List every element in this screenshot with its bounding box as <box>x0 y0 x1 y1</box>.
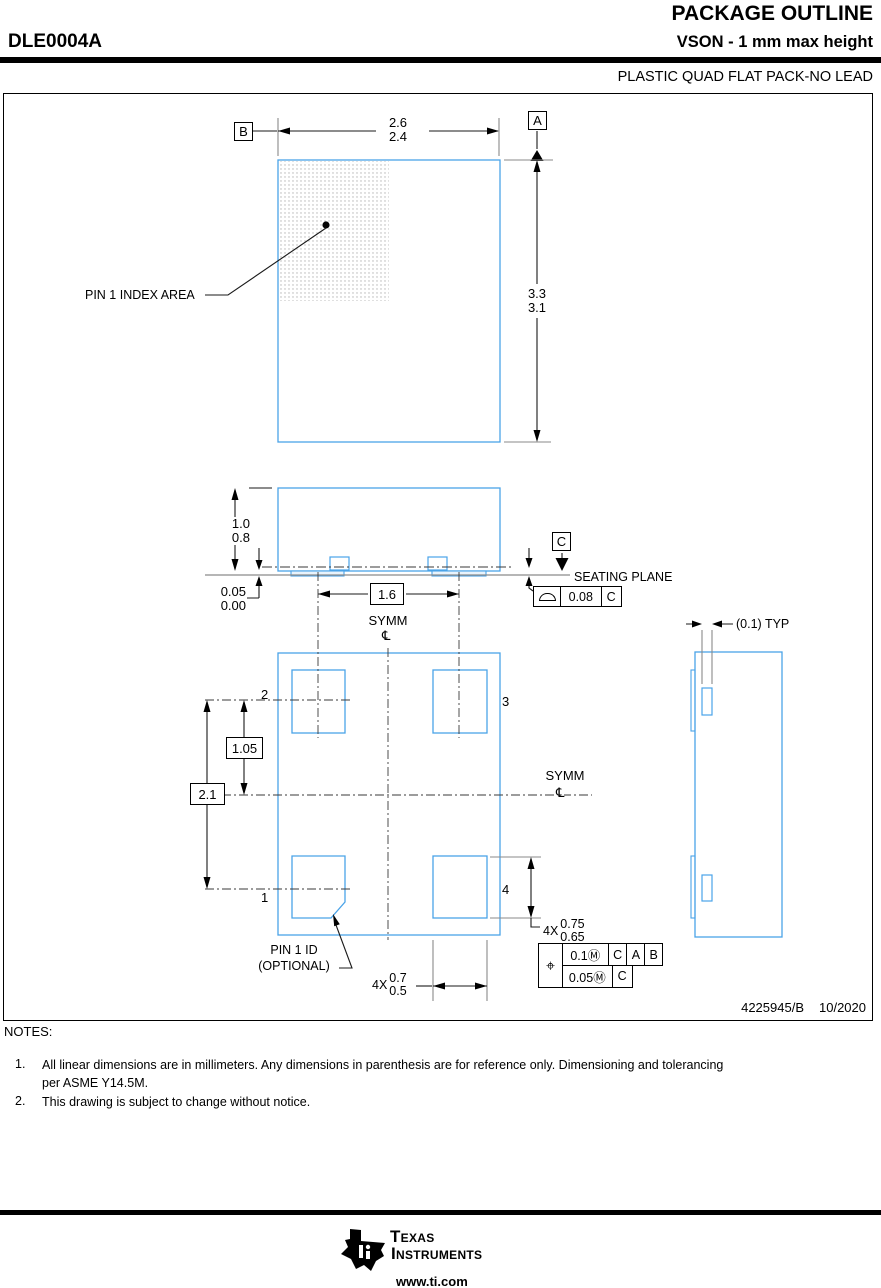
pitch-dim: 1.6 <box>378 587 396 602</box>
position-datum1-a: A <box>626 943 645 966</box>
side-view <box>205 488 570 598</box>
pin1-id-leader <box>336 925 352 968</box>
body-height-max: 1.0 <box>210 517 250 531</box>
typ-dim-label: (0.1) TYP <box>736 617 789 631</box>
bottom-view <box>204 572 593 1001</box>
body-width-max: 2.6 <box>376 116 420 130</box>
position-datum1-c: C <box>608 943 628 966</box>
footer-rule <box>0 1210 881 1215</box>
pin1-index-area-stipple <box>279 161 389 301</box>
flatness-datum: C <box>607 590 616 604</box>
pad-length-dim: 4X 0.75 0.65 <box>543 918 585 944</box>
note-2-number: 2. <box>15 1094 25 1108</box>
symm-top-text: SYMM <box>362 614 414 628</box>
package-outline-page: PACKAGE OUTLINE DLE0004A VSON - 1 mm max… <box>0 0 881 1288</box>
pad-width-qty: 4X <box>372 978 387 992</box>
pad-width-dim: 4X 0.7 0.5 <box>372 972 407 998</box>
pad-row-dim: 1.05 <box>232 741 257 756</box>
body-width-dim: 2.6 2.4 <box>376 116 420 144</box>
flatness-symbol-cell <box>533 586 561 607</box>
flatness-datum-cell: C <box>601 586 622 607</box>
package-body-bottom <box>278 653 500 935</box>
pin1-id-label: PIN 1 ID (OPTIONAL) <box>250 942 338 974</box>
centerline-symbol-top: ℄ <box>382 629 390 644</box>
pin1-id-line2: (OPTIONAL) <box>250 958 338 974</box>
note-1-number: 1. <box>15 1057 25 1071</box>
ti-logo: Texas Instruments <box>340 1228 482 1272</box>
note-1-text: All linear dimensions are in millimeters… <box>42 1057 842 1092</box>
standoff-min: 0.00 <box>206 599 246 613</box>
pin-4-label: 4 <box>502 882 509 897</box>
doc-number: 4225945/B <box>741 1000 804 1015</box>
position-icon: ⌖ <box>546 956 555 976</box>
pad-1-chamfered <box>292 856 345 918</box>
pad-4 <box>433 856 487 918</box>
datum-c-box: C <box>552 532 571 551</box>
pad-span-dim-box: 2.1 <box>190 783 225 805</box>
datum-b-box: B <box>234 122 253 141</box>
pad-width-min: 0.5 <box>389 985 406 998</box>
body-length-min: 3.1 <box>519 301 555 315</box>
datum-a-label: A <box>533 113 542 128</box>
package-body-detail <box>695 652 782 937</box>
position-tol1-cell: 0.1Ⓜ <box>562 943 609 966</box>
pin-3-label: 3 <box>502 694 509 709</box>
symm-label-top: SYMM <box>362 614 414 628</box>
package-body-side <box>278 488 500 571</box>
position-symbol-cell: ⌖ <box>538 943 563 988</box>
body-length-dim: 3.3 3.1 <box>519 287 555 315</box>
position-datum1-b: B <box>644 943 663 966</box>
detail-view <box>686 621 782 938</box>
symm-right-text: SYMM <box>540 769 590 783</box>
flatness-icon <box>539 593 556 601</box>
pad-row-dim-box: 1.05 <box>226 737 263 759</box>
position-tol2: 0.05Ⓜ <box>569 967 606 986</box>
note-2-text: This drawing is subject to change withou… <box>42 1094 842 1112</box>
pin-1-label: 1 <box>261 890 268 905</box>
flatness-value-cell: 0.08 <box>560 586 602 607</box>
datum-b-label: B <box>239 124 248 139</box>
pad-length-qty: 4X <box>543 924 558 938</box>
body-height-min: 0.8 <box>210 531 250 545</box>
datum-c-label: C <box>557 534 566 549</box>
pin1-id-line1: PIN 1 ID <box>250 942 338 958</box>
doc-id-block: 4225945/B 10/2020 <box>640 1000 866 1015</box>
brand-texas: Texas <box>390 1228 482 1245</box>
position-tol1: 0.1Ⓜ <box>570 945 600 964</box>
pin-2-label: 2 <box>261 687 268 702</box>
datum-a-box: A <box>528 111 547 130</box>
seating-plane-label: SEATING PLANE <box>574 570 672 584</box>
ti-url: www.ti.com <box>396 1274 468 1288</box>
position-tol2-cell: 0.05Ⓜ <box>562 965 613 988</box>
standoff-max: 0.05 <box>206 585 246 599</box>
body-height-dim: 1.0 0.8 <box>210 517 250 545</box>
pitch-dim-box: 1.6 <box>370 583 404 605</box>
body-width-min: 2.4 <box>376 130 420 144</box>
brand-instruments: Instruments <box>391 1245 482 1262</box>
centerline-symbol-right: ℄ <box>556 786 564 801</box>
texas-state-icon <box>340 1228 386 1272</box>
pin1-index-dot <box>322 221 329 228</box>
doc-date: 10/2020 <box>819 1000 866 1015</box>
pad-3 <box>433 670 487 733</box>
pin1-index-area-label: PIN 1 INDEX AREA <box>85 288 195 302</box>
top-view <box>205 118 553 442</box>
pad-2 <box>292 670 345 733</box>
position-datum2-c: C <box>612 965 633 988</box>
symm-label-right: SYMM <box>540 769 590 783</box>
pad-span-dim: 2.1 <box>198 787 216 802</box>
standoff-dim: 0.05 0.00 <box>206 585 246 613</box>
notes-heading: NOTES: <box>4 1024 52 1039</box>
body-length-max: 3.3 <box>519 287 555 301</box>
flatness-value: 0.08 <box>569 590 593 604</box>
